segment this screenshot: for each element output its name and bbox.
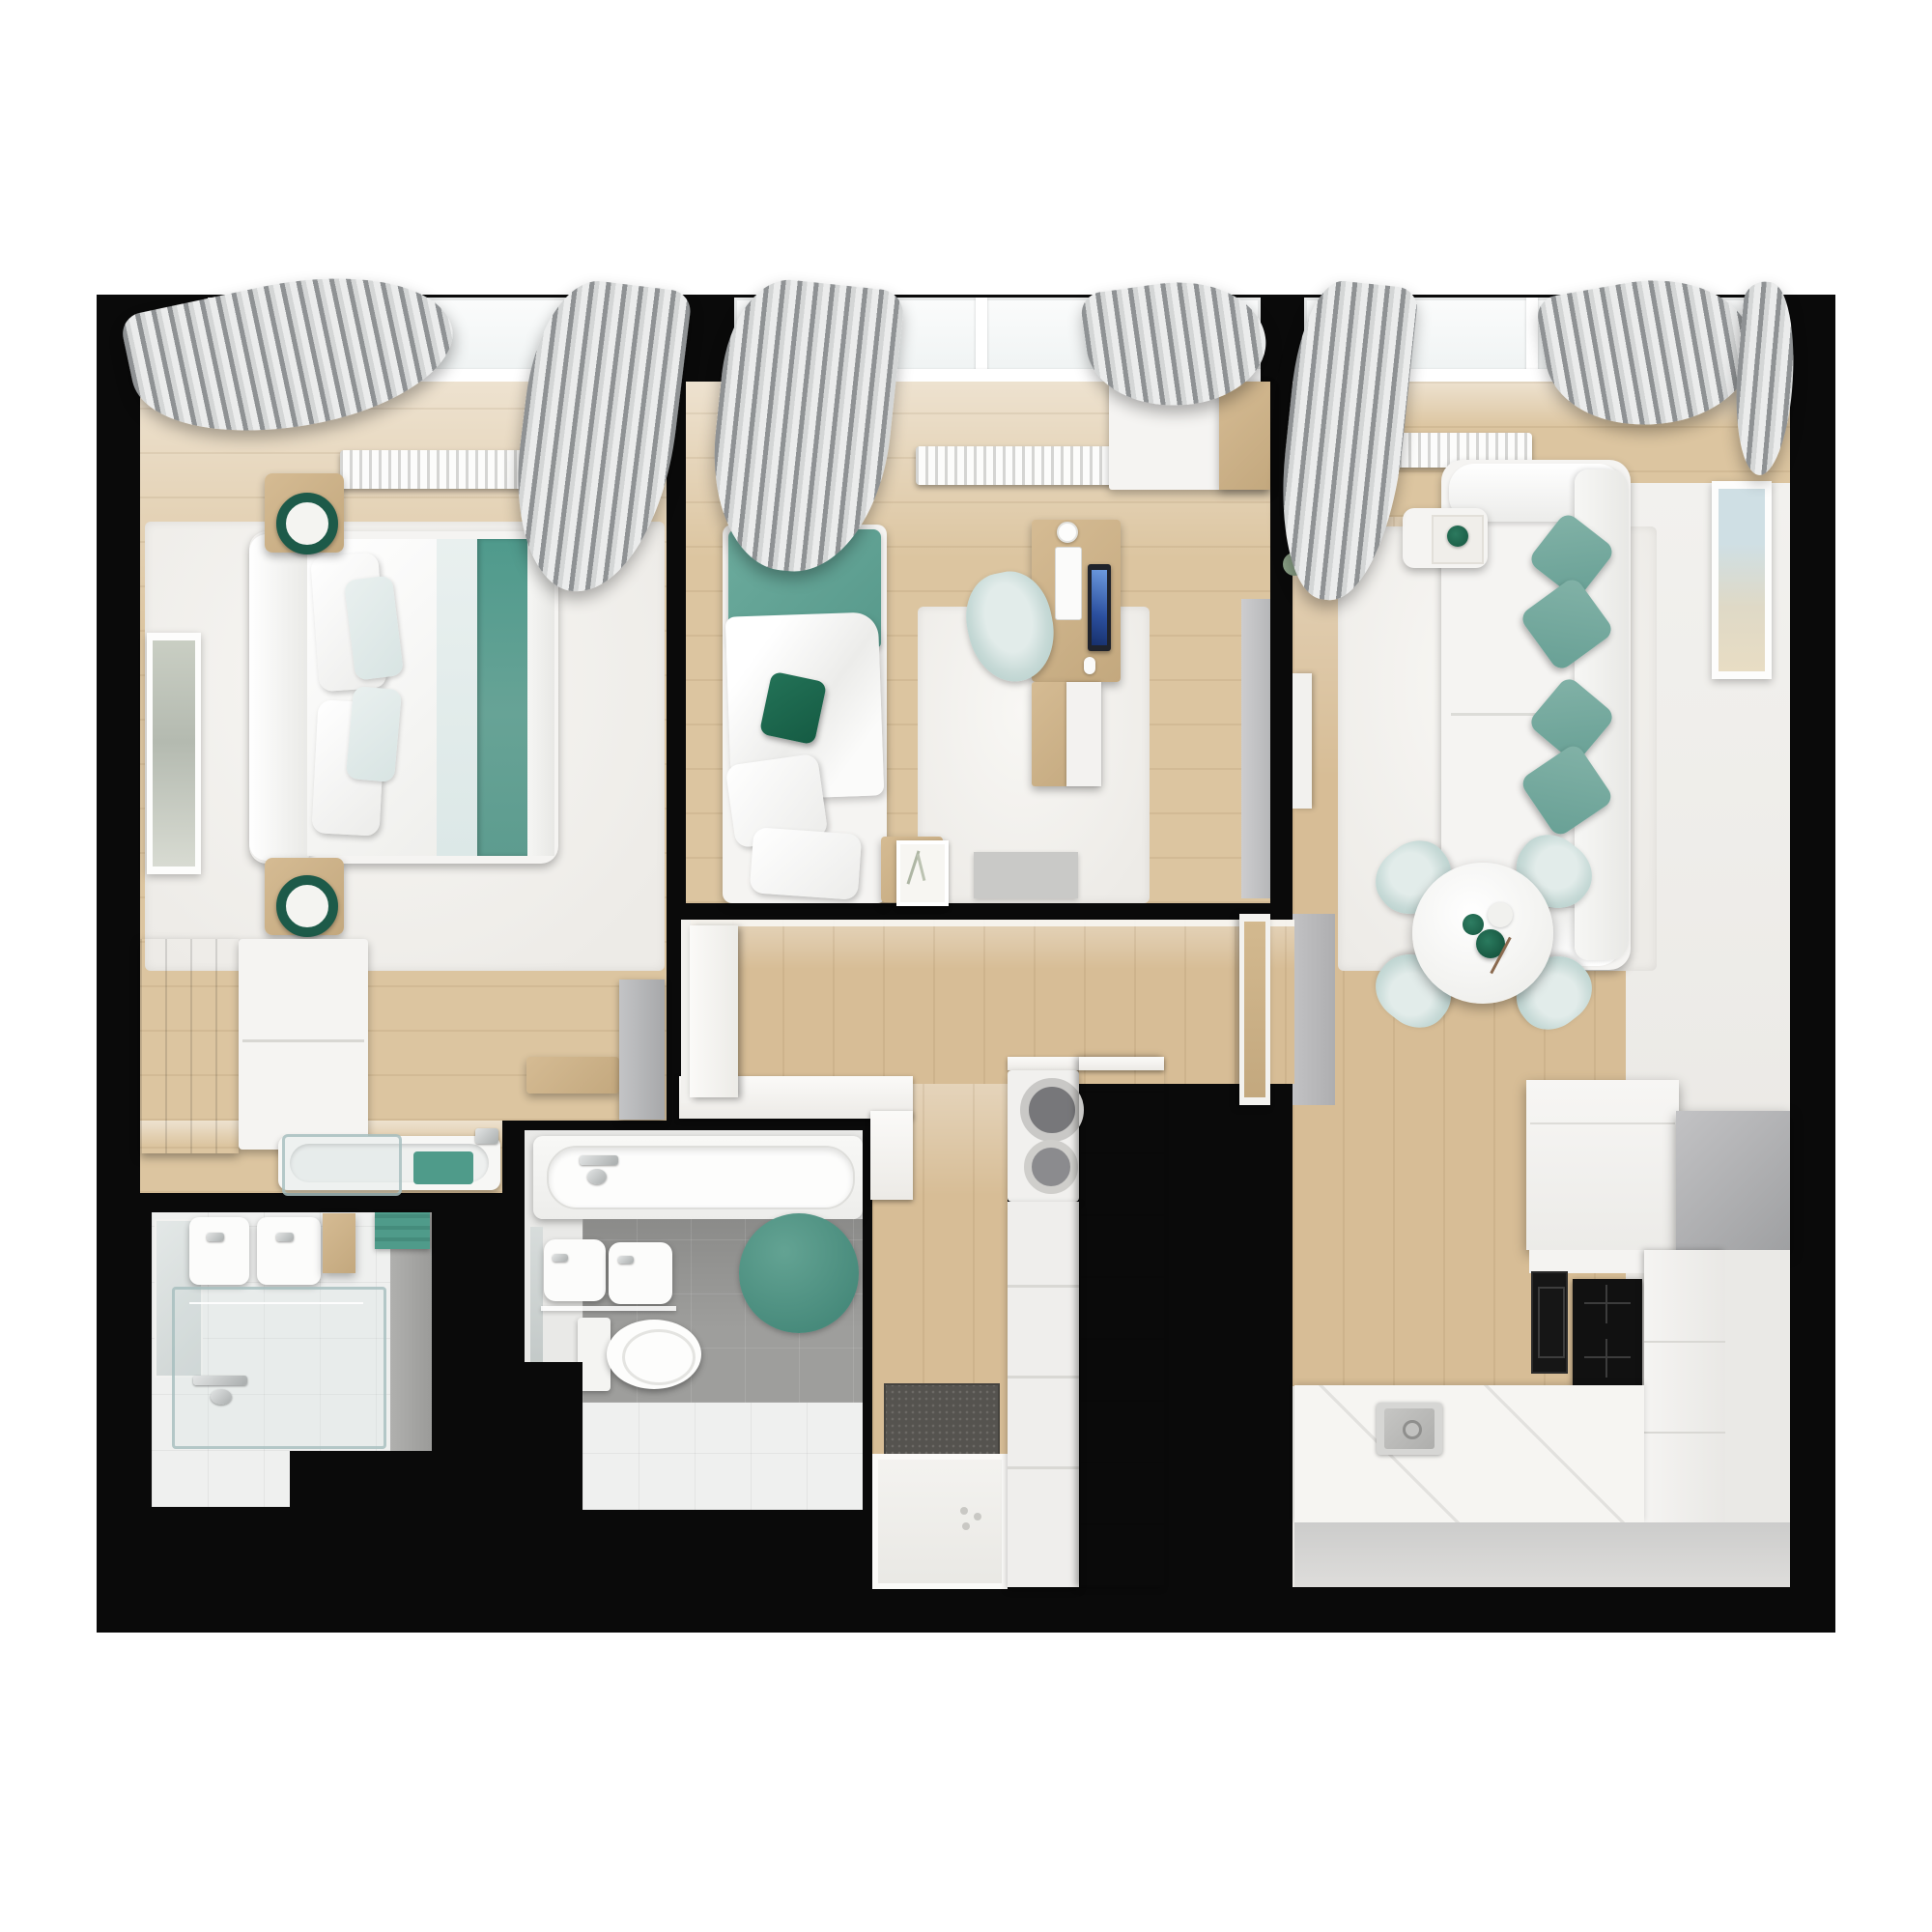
wall-pier bbox=[1293, 673, 1312, 809]
bathroom2-mirror bbox=[530, 1227, 543, 1372]
table-lamp-teal bbox=[276, 493, 338, 554]
bathtub-faucet bbox=[580, 1155, 618, 1165]
table-plate bbox=[1488, 902, 1513, 927]
dresser-white bbox=[239, 939, 368, 1150]
kitchen-front-band bbox=[1529, 1250, 1645, 1273]
sink-faucet bbox=[207, 1233, 224, 1241]
mug bbox=[1057, 522, 1078, 543]
wardrobe-darkwood bbox=[140, 939, 239, 1153]
cooktop-marking bbox=[1605, 1285, 1607, 1323]
entry-floor-drain-dots bbox=[960, 1507, 968, 1515]
sink-faucet bbox=[618, 1256, 634, 1264]
door-leaf-living-panel bbox=[1244, 922, 1265, 1097]
bathtub-faucet bbox=[475, 1128, 498, 1144]
master-bed-teal-runner bbox=[477, 539, 527, 856]
shower-faucet bbox=[193, 1376, 247, 1385]
glass-shelf bbox=[541, 1306, 676, 1311]
kitchen-tall-cabinets bbox=[1644, 1250, 1725, 1522]
washer-porthole bbox=[1024, 1140, 1078, 1194]
bathtub-faucet-handle bbox=[587, 1169, 607, 1184]
glass-shower bbox=[172, 1287, 386, 1449]
drawer-line bbox=[1008, 1285, 1079, 1288]
sideboard-line bbox=[1530, 1122, 1675, 1124]
toilet-seat bbox=[622, 1329, 696, 1385]
bathtub-teal-mat bbox=[413, 1151, 473, 1184]
bathroom1-wood-cabinet bbox=[323, 1213, 355, 1273]
gray-mat bbox=[974, 852, 1078, 898]
door-leaf-master bbox=[690, 925, 738, 1097]
radiator bbox=[916, 446, 1114, 485]
bedroom2-wardrobe-wood-side bbox=[1219, 382, 1270, 490]
hallway-top-trim bbox=[682, 920, 1294, 926]
sink-faucet bbox=[276, 1233, 294, 1241]
monitor-screen bbox=[1092, 570, 1107, 645]
kitchen-counter bbox=[1294, 1385, 1644, 1522]
toilet-cistern bbox=[578, 1318, 611, 1391]
gray-tv-strip bbox=[1293, 914, 1335, 1105]
oven-door-line bbox=[1538, 1287, 1565, 1358]
master-bed-duvet-paleblue bbox=[437, 539, 479, 856]
sink-faucet bbox=[553, 1254, 568, 1262]
pillow-paleblue bbox=[346, 686, 402, 782]
cabinet-line bbox=[1644, 1432, 1725, 1434]
hall-drawer-unit bbox=[1008, 1202, 1079, 1587]
teal-round-rug bbox=[739, 1213, 859, 1333]
keyboard bbox=[1055, 547, 1082, 620]
cabinet-line bbox=[1644, 1341, 1725, 1343]
wall-sink bbox=[257, 1217, 321, 1285]
floor-plan-render bbox=[0, 0, 1932, 1932]
white-sideboard bbox=[1526, 1080, 1679, 1250]
gray-wall-strip bbox=[1241, 599, 1270, 898]
drawer-line bbox=[1008, 1466, 1079, 1469]
master-bed-headboard bbox=[249, 534, 309, 861]
wall-art-canvas bbox=[153, 640, 195, 867]
cooktop-marking bbox=[1605, 1339, 1607, 1378]
gray-appliance-block bbox=[1676, 1111, 1790, 1251]
cooktop-marking bbox=[1584, 1302, 1631, 1304]
green-cup bbox=[1447, 526, 1468, 547]
teal-towel bbox=[375, 1212, 430, 1249]
low-wall-cap bbox=[870, 1111, 913, 1200]
dresser-drawer-line bbox=[242, 1039, 364, 1042]
entry-floor bbox=[872, 1454, 1008, 1589]
bathtub-glass-cover bbox=[282, 1134, 402, 1196]
sink-drain bbox=[1403, 1420, 1422, 1439]
cooktop-marking bbox=[1584, 1356, 1631, 1358]
wall-shelf bbox=[526, 1057, 619, 1094]
bathroom2-notch bbox=[525, 1362, 582, 1510]
master-bed-foot bbox=[527, 539, 554, 856]
glass-shower-panel-line bbox=[189, 1302, 363, 1304]
pillow bbox=[750, 827, 862, 900]
radiator bbox=[340, 450, 545, 489]
wall-sink bbox=[544, 1239, 606, 1301]
wall-sink bbox=[609, 1242, 672, 1304]
washer-porthole bbox=[1020, 1078, 1084, 1142]
mouse bbox=[1084, 657, 1095, 674]
kitchen-right-floor bbox=[1725, 1250, 1790, 1522]
table-lamp-teal bbox=[276, 875, 338, 937]
bathroom2-light-floor bbox=[582, 1403, 863, 1510]
gray-panel bbox=[619, 980, 665, 1120]
wall-art-canvas bbox=[1719, 489, 1765, 671]
induction-cooktop bbox=[1573, 1279, 1642, 1387]
shower-faucet-handle bbox=[211, 1389, 232, 1405]
kitchen-floor-gray-band bbox=[1294, 1522, 1790, 1587]
drawer-line bbox=[1008, 1376, 1079, 1378]
hallway bbox=[682, 920, 1294, 1084]
bathroom1-notch bbox=[290, 1451, 432, 1507]
bedroom2-cabinet-door bbox=[1066, 682, 1101, 786]
hall-wood-column bbox=[1079, 1057, 1164, 1587]
wall-sink bbox=[189, 1217, 249, 1285]
